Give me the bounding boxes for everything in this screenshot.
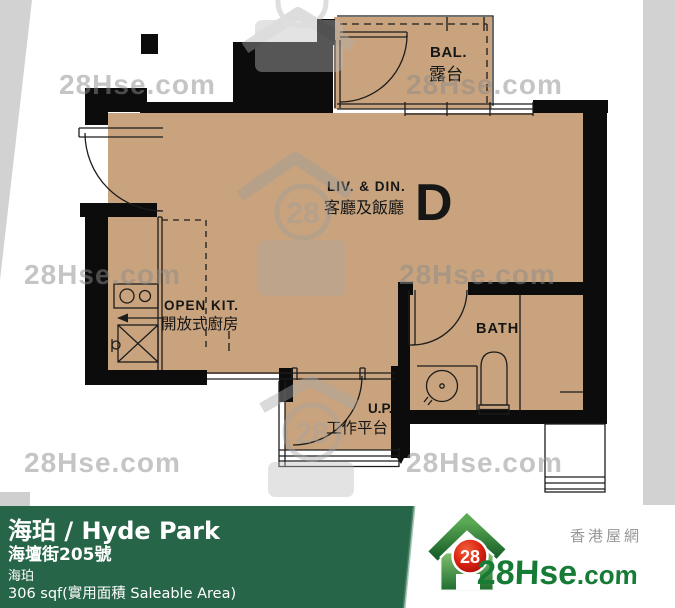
balcony-label-en: BAL. <box>430 44 467 61</box>
watermark-text: 28Hse.com <box>59 69 216 100</box>
bath-floor <box>408 283 583 413</box>
kitchen-label-zh: 開放式廚房 <box>161 314 239 333</box>
watermark-text: 28Hse.com <box>399 259 556 290</box>
watermark-badge: 28 <box>295 417 328 450</box>
logo-wordmark-suffix: .com <box>577 560 639 590</box>
watermark-text: 28Hse.com <box>24 259 181 290</box>
watermark-text: 28Hse.com <box>406 447 563 478</box>
listing-address: 海壇街205號 <box>8 544 112 565</box>
unit-letter: D <box>415 174 453 232</box>
logo-tagline: 香港屋網 <box>570 527 642 545</box>
listing-estate: 海珀 <box>8 569 34 584</box>
floorplan-svg: BAL. 露台 LIV. & DIN. 客廳及飯廳 D OPEN KIT. 開放… <box>0 0 675 608</box>
logo-wordmark-main: 28Hse <box>476 554 577 592</box>
watermark-badge: 28 <box>286 197 319 230</box>
listing-area: 306 sqf(實用面積 Saleable Area) <box>8 584 236 602</box>
watermark-text: 28Hse.com <box>406 69 563 100</box>
living-label-zh: 客廳及飯廳 <box>324 198 404 217</box>
kitchen-floor <box>108 283 398 374</box>
watermark-text: 28Hse.com <box>24 447 181 478</box>
footer-bar: 海珀 / Hyde Park 海壇街205號 海珀 306 sqf(實用面積 S… <box>0 506 675 608</box>
up-label-en: U.P. <box>368 401 393 416</box>
logo-wordmark: 28Hse.com <box>476 554 638 592</box>
kitchen-label-en: OPEN KIT. <box>164 298 239 313</box>
bath-label: BATH <box>476 321 519 337</box>
listing-image: BAL. 露台 LIV. & DIN. 客廳及飯廳 D OPEN KIT. 開放… <box>0 0 675 608</box>
listing-title: 海珀 / Hyde Park <box>8 517 221 545</box>
